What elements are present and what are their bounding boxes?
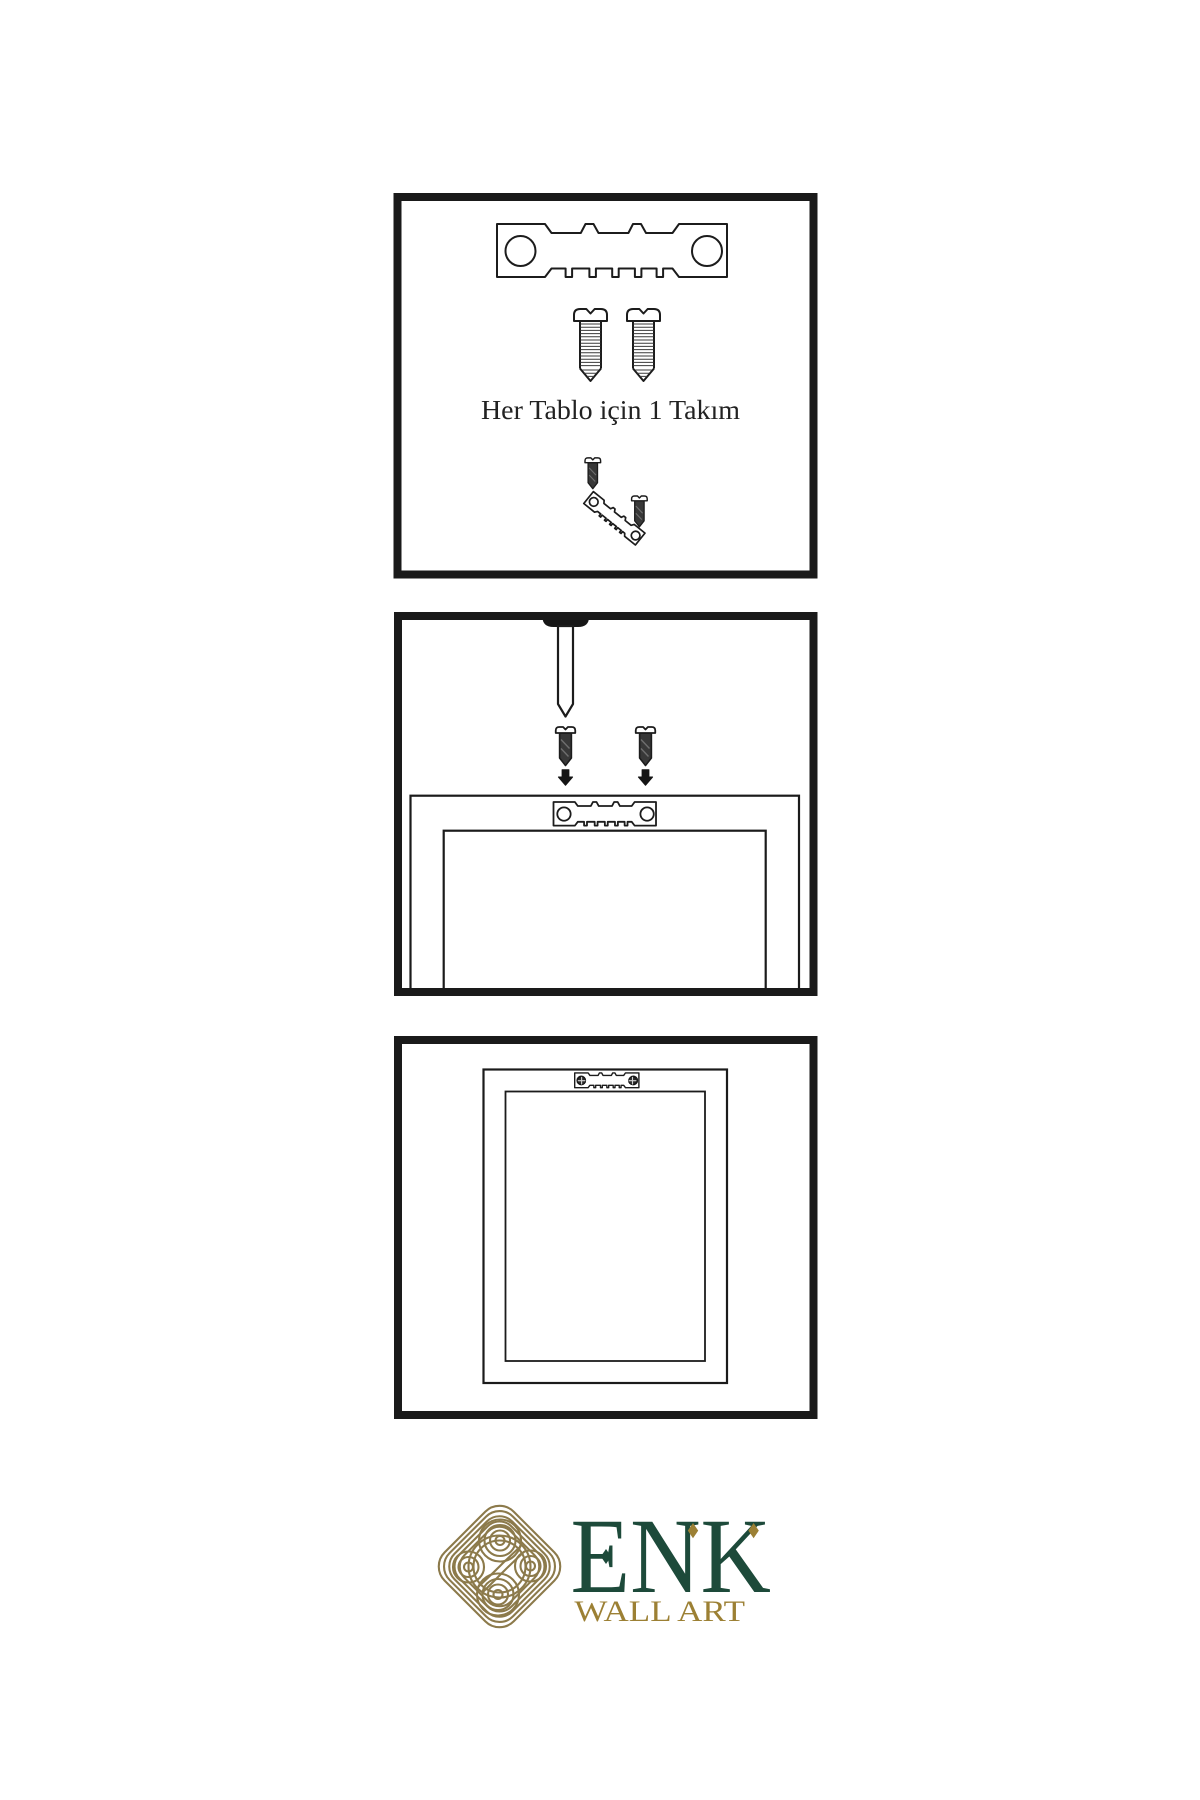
svg-text:WALL ART: WALL ART: [574, 1595, 745, 1628]
svg-text:Her Tablo için 1 Takım: Her Tablo için 1 Takım: [481, 395, 740, 425]
